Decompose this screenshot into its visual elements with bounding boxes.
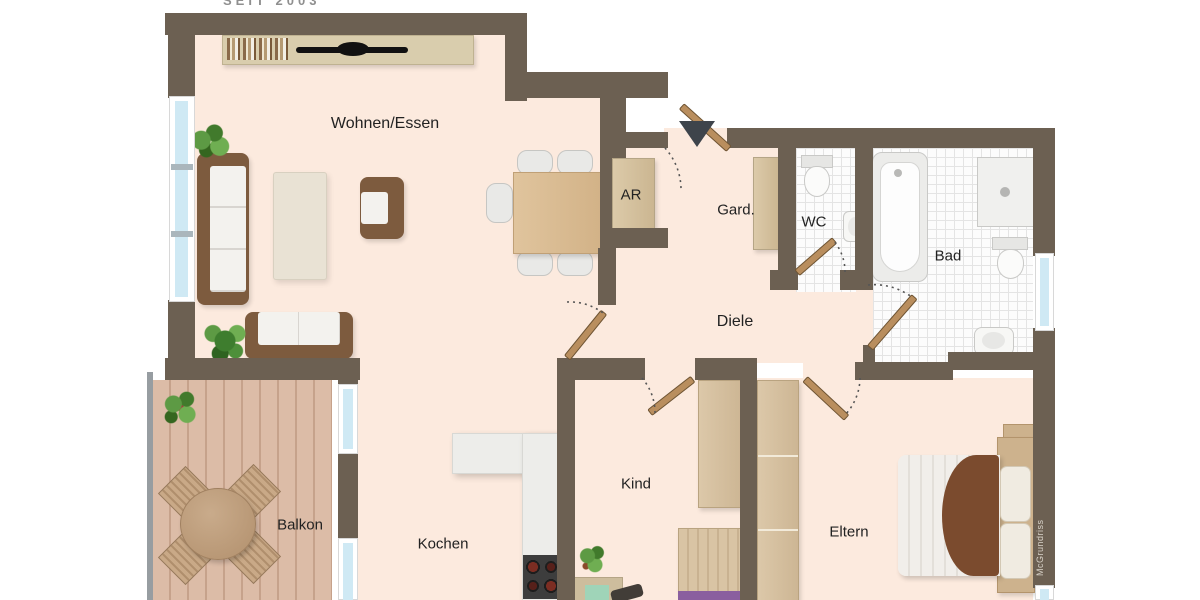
room-label-bad: Bad — [935, 248, 962, 265]
armchair-cushion — [361, 192, 388, 224]
dining-chair — [557, 251, 593, 276]
plant — [158, 388, 202, 428]
wardrobe-gard — [753, 157, 780, 250]
wall — [855, 148, 873, 283]
window-mullion — [171, 164, 193, 170]
bathtub — [872, 152, 928, 282]
shower — [977, 157, 1035, 227]
books — [227, 38, 289, 60]
plant — [577, 543, 607, 575]
pillow — [1000, 466, 1031, 522]
bed-eltern-blanket — [942, 455, 999, 576]
window-glass — [1040, 258, 1049, 326]
wall — [840, 270, 873, 290]
wardrobe-divider — [758, 529, 798, 531]
room-label-balkon: Balkon — [277, 517, 323, 534]
toilet — [997, 249, 1024, 279]
window-glass — [175, 101, 188, 297]
wall — [338, 452, 358, 540]
brand-text: SEIT 2003 — [223, 0, 320, 8]
wall — [855, 362, 953, 380]
room-label-wc: WC — [802, 214, 827, 231]
room-label-diele: Diele — [717, 313, 753, 331]
bed-kind-blanket — [678, 591, 742, 600]
wall — [165, 13, 527, 35]
entrance-arrow-icon — [679, 121, 715, 147]
room-label-gard: Gard. — [717, 202, 755, 219]
room-label-eltern: Eltern — [829, 524, 868, 541]
sofa-2-cushions — [258, 312, 340, 345]
bed-kind — [678, 528, 744, 594]
room-label-kochen: Kochen — [418, 536, 469, 553]
wall — [527, 72, 668, 98]
bathtub-basin — [880, 162, 920, 272]
wall — [1033, 128, 1055, 256]
balcony-table — [180, 488, 256, 560]
sofa-3-cushions — [210, 166, 246, 292]
window-glass — [343, 543, 353, 600]
wall — [727, 128, 1055, 148]
wall — [770, 270, 798, 290]
wardrobe-eltern — [757, 380, 799, 600]
dining-chair — [517, 251, 553, 276]
room-label-wohnen-essen: Wohnen/Essen — [331, 115, 439, 133]
stove — [523, 555, 561, 599]
wall — [600, 228, 668, 248]
dining-table — [513, 172, 603, 254]
toilet — [804, 166, 830, 197]
pillow — [1000, 523, 1031, 579]
room-label-ar: AR — [621, 187, 642, 204]
wall — [598, 248, 616, 305]
desk-pad — [585, 585, 609, 600]
wall — [557, 358, 645, 380]
wall — [695, 358, 757, 380]
window-glass — [1040, 589, 1049, 600]
coffee-table — [273, 172, 327, 280]
wall — [778, 148, 796, 290]
wall — [505, 13, 527, 101]
sink-basin — [982, 332, 1005, 349]
balcony-railing — [147, 372, 153, 600]
wall — [557, 380, 575, 600]
bathtub-faucet — [894, 169, 902, 177]
shower-drain — [1000, 187, 1010, 197]
watermark-text: McGrundriss — [1035, 518, 1045, 576]
armchair — [360, 177, 404, 239]
floor-eltern-doorway — [803, 358, 857, 380]
dining-chair — [486, 183, 513, 223]
floorplan-canvas: SEIT 2003 McGrundriss Wohnen/Essen AR Ga… — [0, 0, 1200, 600]
window-mullion — [171, 231, 193, 237]
window-glass — [343, 389, 353, 449]
room-label-kind: Kind — [621, 476, 651, 493]
wall — [948, 352, 1033, 370]
wardrobe-kind — [698, 380, 742, 508]
wall — [168, 13, 195, 98]
wall — [740, 378, 757, 600]
wall — [626, 132, 668, 148]
sofa-2-seater — [245, 312, 353, 359]
wardrobe-divider — [758, 455, 798, 457]
sofa-3-seater — [197, 153, 249, 305]
wall — [165, 358, 360, 380]
tv-center — [337, 42, 369, 56]
